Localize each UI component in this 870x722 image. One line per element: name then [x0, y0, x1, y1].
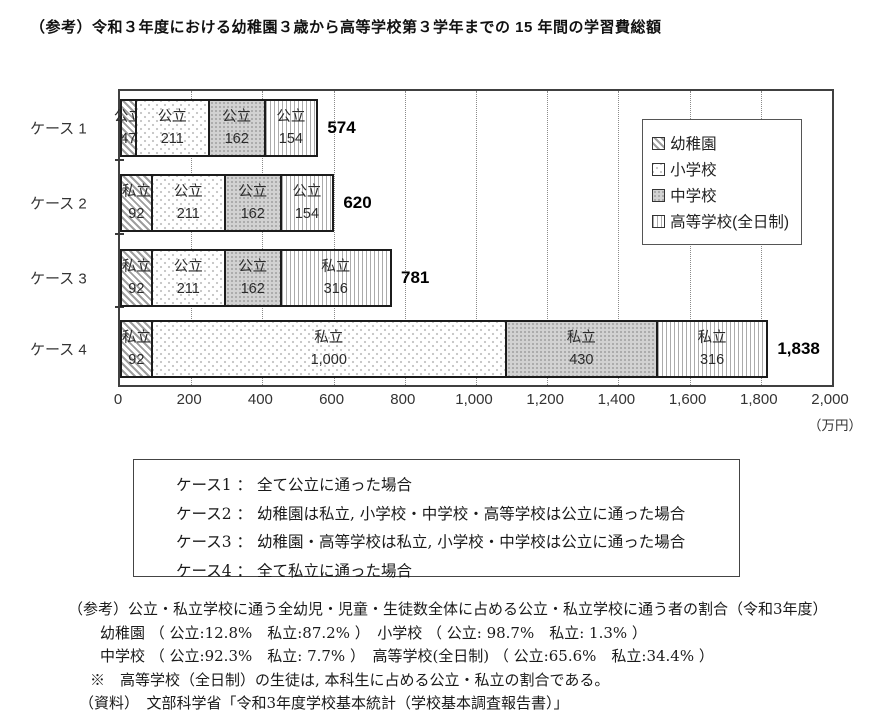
bar-segment: 公立162 — [208, 99, 266, 157]
bar-segment: 公立162 — [224, 174, 282, 232]
segment-value-label: 211 — [177, 278, 200, 300]
bar-segment: 私立316 — [656, 320, 768, 378]
segment-sector-label: 私立 — [698, 327, 727, 349]
x-tick-label: 2,000 — [811, 391, 849, 408]
case-line-1: ケース1 ： 全て公立に通った場合 — [176, 471, 739, 500]
segment-value-label: 92 — [128, 349, 144, 371]
y-axis-tick — [115, 233, 124, 235]
note-line-4: ※ 高等学校（全日制）の生徒は, 本科生に占める公立・私立の割合である。 — [90, 669, 828, 693]
legend-item: 高等学校(全日制) — [652, 210, 789, 232]
legend-box: 幼稚園小学校中学校高等学校(全日制) — [642, 119, 802, 245]
segment-value-label: 316 — [324, 278, 348, 300]
segment-value-label: 316 — [700, 349, 724, 371]
segment-sector-label: 私立 — [122, 181, 151, 203]
note-line-2: 幼稚園 （ 公立:12.8% 私立:87.2% ） 小学校 （ 公立: 98.7… — [100, 622, 828, 646]
legend-label: 小学校 — [670, 158, 717, 180]
bar-segment: 公立162 — [224, 249, 282, 307]
segment-sector-label: 私立 — [122, 327, 151, 349]
segment-value-label: 430 — [569, 349, 593, 371]
bar-segment: 公立154 — [264, 99, 319, 157]
x-axis: 02004006008001,0001,2001,4001,6001,8002,… — [118, 391, 830, 411]
bar-segment: 公立211 — [151, 174, 226, 232]
total-value-label: 620 — [343, 193, 371, 213]
x-tick-label: 600 — [319, 391, 344, 408]
x-tick-label: 1,400 — [598, 391, 636, 408]
x-tick-label: 1,000 — [455, 391, 493, 408]
segment-sector-label: 公立 — [174, 181, 203, 203]
legend-swatch — [652, 137, 665, 150]
segment-value-label: 92 — [128, 278, 144, 300]
segment-sector-label: 私立 — [314, 327, 343, 349]
y-axis-tick — [115, 159, 124, 161]
legend-label: 中学校 — [670, 184, 717, 206]
bar-segment: 私立316 — [280, 249, 392, 307]
x-tick-label: 0 — [114, 391, 122, 408]
segment-sector-label: 公立 — [276, 106, 305, 128]
legend-item: 小学校 — [652, 158, 789, 180]
segment-value-label: 211 — [177, 203, 200, 225]
total-value-label: 574 — [327, 118, 355, 138]
bar-segment: 公立211 — [135, 99, 210, 157]
bar-case-4: ケース 4私立92私立1,000私立430私立3161,838 — [120, 320, 832, 378]
segment-sector-label: 公立 — [238, 181, 267, 203]
segment-sector-label: 公立 — [174, 256, 203, 278]
x-tick-label: 1,200 — [526, 391, 564, 408]
legend-item: 幼稚園 — [652, 132, 789, 154]
bar-segment: 私立1,000 — [151, 320, 507, 378]
segment-sector-label: 私立 — [567, 327, 596, 349]
page-title: （参考）令和３年度における幼稚園３歳から高等学校第３学年までの 15 年間の学習… — [30, 16, 662, 37]
bar-segment: 私立92 — [120, 320, 153, 378]
note-line-5: （資料） 文部科学省「令和3年度学校基本統計（学校基本調査報告書）」 — [79, 692, 828, 716]
legend-item: 中学校 — [652, 184, 789, 206]
case-line-2: ケース2 ： 幼稚園は私立, 小学校・中学校・高等学校は公立に通った場合 — [176, 500, 739, 529]
segment-value-label: 154 — [279, 128, 303, 150]
segment-value-label: 154 — [295, 203, 319, 225]
bar-segment: 私立92 — [120, 249, 153, 307]
category-label: ケース 3 — [30, 268, 112, 289]
segment-value-label: 162 — [225, 128, 249, 150]
segment-sector-label: 公立 — [222, 106, 251, 128]
segment-value-label: 162 — [241, 278, 265, 300]
case-description-box: ケース1 ： 全て公立に通った場合 ケース2 ： 幼稚園は私立, 小学校・中学校… — [133, 459, 740, 577]
x-tick-label: 1,800 — [740, 391, 778, 408]
legend-swatch — [652, 215, 665, 228]
segment-value-label: 211 — [161, 128, 184, 150]
segment-value-label: 92 — [128, 203, 144, 225]
bar-segment: 公立211 — [151, 249, 226, 307]
bar-segment: 私立430 — [505, 320, 658, 378]
legend-label: 幼稚園 — [670, 132, 717, 154]
segment-sector-label: 私立 — [321, 256, 350, 278]
note-line-1: （参考）公立・私立学校に通う全幼児・児童・生徒数全体に占める公立・私立学校に通う… — [68, 598, 828, 622]
segment-value-label: 162 — [241, 203, 265, 225]
case-line-4: ケース4 ： 全て私立に通った場合 — [176, 557, 739, 586]
category-label: ケース 1 — [30, 118, 112, 139]
reference-note: （参考）公立・私立学校に通う全幼児・児童・生徒数全体に占める公立・私立学校に通う… — [68, 598, 828, 716]
x-tick-label: 200 — [177, 391, 202, 408]
total-value-label: 1,838 — [777, 339, 820, 359]
segment-sector-label: 私立 — [122, 256, 151, 278]
segment-sector-label: 公立 — [292, 181, 321, 203]
legend-swatch — [652, 163, 665, 176]
total-value-label: 781 — [401, 268, 429, 288]
bar-segment: 公立154 — [280, 174, 335, 232]
legend-swatch — [652, 189, 665, 202]
x-tick-label: 400 — [248, 391, 273, 408]
bar-case-3: ケース 3私立92公立211公立162私立316781 — [120, 249, 832, 307]
case-line-3: ケース3 ： 幼稚園・高等学校は私立, 小学校・中学校は公立に通った場合 — [176, 528, 739, 557]
category-label: ケース 4 — [30, 339, 112, 360]
segment-sector-label: 公立 — [238, 256, 267, 278]
category-label: ケース 2 — [30, 193, 112, 214]
x-tick-label: 800 — [390, 391, 415, 408]
segment-sector-label: 公立 — [158, 106, 187, 128]
note-line-3: 中学校 （ 公立:92.3% 私立: 7.7% ） 高等学校(全日制) （ 公立… — [100, 645, 828, 669]
document-page: （参考）令和３年度における幼稚園３歳から高等学校第３学年までの 15 年間の学習… — [0, 0, 870, 722]
segment-value-label: 1,000 — [311, 349, 347, 371]
x-tick-label: 1,600 — [669, 391, 707, 408]
axis-unit-label: （万円） — [808, 414, 862, 434]
legend-label: 高等学校(全日制) — [670, 210, 789, 232]
bar-segment: 私立92 — [120, 174, 153, 232]
chart-plot: ケース 1公立47公立211公立162公立154574ケース 2私立92公立21… — [118, 89, 834, 387]
